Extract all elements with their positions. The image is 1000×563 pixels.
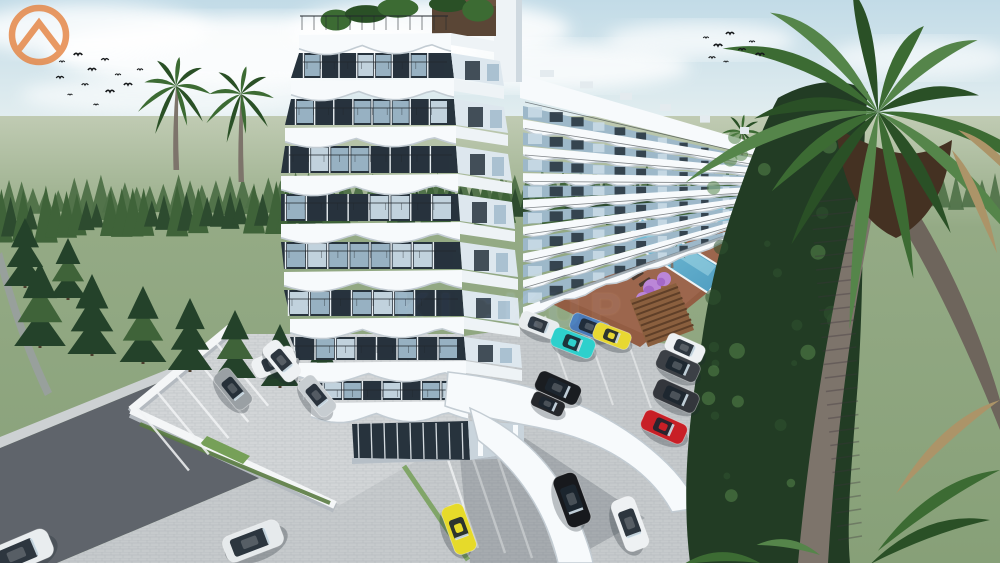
scene-canvas — [0, 0, 1000, 563]
architectural-rendering: KICKUP — [0, 0, 1000, 563]
